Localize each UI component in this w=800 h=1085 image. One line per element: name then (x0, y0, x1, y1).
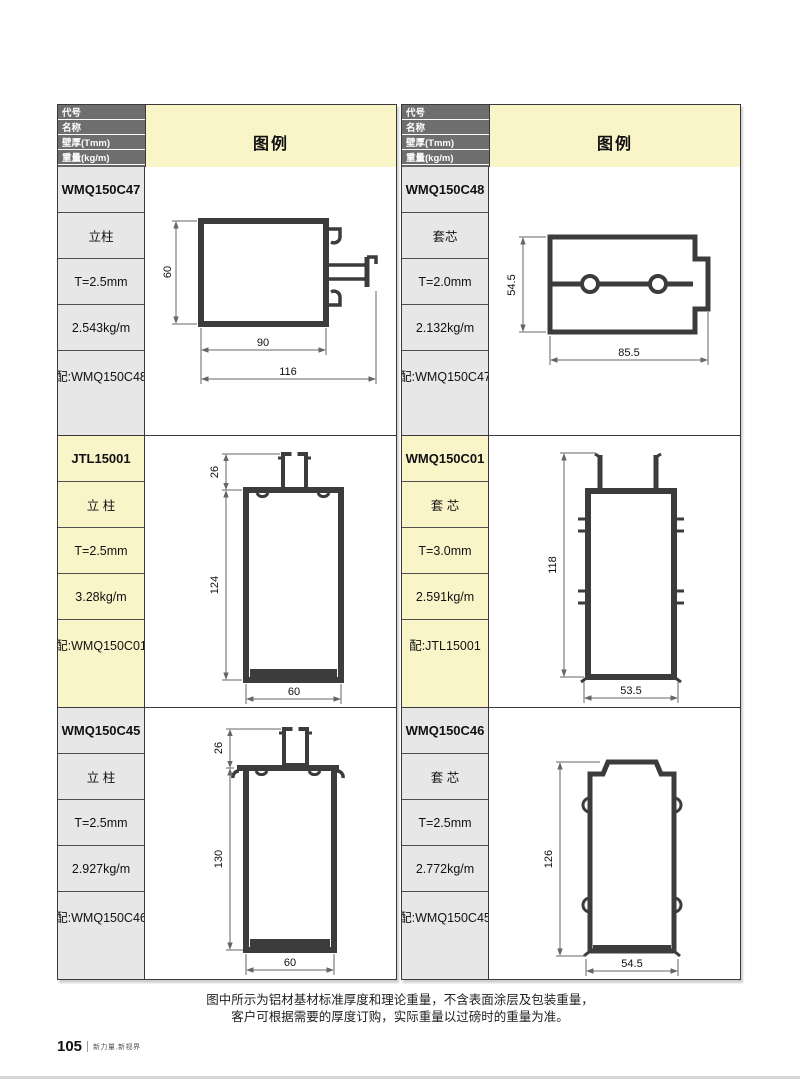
product-code: JTL15001 (58, 436, 145, 482)
profile-diagram-wmq150c46: 126 54.5 (489, 708, 740, 979)
dim-label-height: 60 (162, 265, 174, 277)
product-name: 立 柱 (58, 482, 145, 528)
profile-table-right: 代号 名称 壁厚(Tmm) 重量(kg/m) 配套 图例 WMQ150C48 套… (401, 104, 741, 980)
product-thickness: T=3.0mm (402, 528, 489, 574)
product-match: 配:WMQ150C48 (58, 351, 145, 435)
profile-drawing: 26 130 60 (146, 711, 396, 977)
product-weight: 2.543kg/m (58, 305, 145, 351)
dim-label-width: 54.5 (621, 958, 642, 970)
profile-drawing: 60 90 116 (146, 209, 396, 394)
product-thickness: T=2.5mm (58, 800, 145, 846)
page-number: 105 (57, 1038, 82, 1055)
product-thickness: T=2.5mm (58, 528, 145, 574)
page-footer: 105 新力量.新视界 (57, 1038, 140, 1055)
product-match: 配:WMQ150C45 (402, 892, 489, 979)
profile-drawing: 26 124 60 (146, 438, 396, 706)
product-code: WMQ150C45 (58, 708, 145, 754)
product-name: 套 芯 (402, 482, 489, 528)
product-group-wmq150c01: WMQ150C01 套 芯 T=3.0mm 2.591kg/m 配:JTL150… (402, 435, 740, 707)
footer-note: 图中所示为铝材基材标准厚度和理论重量，不含表面涂层及包装重量， 客户可根据需要的… (0, 992, 800, 1026)
header-field-weight: 重量(kg/m) (402, 150, 489, 165)
product-weight: 2.132kg/m (402, 305, 489, 351)
product-weight: 2.927kg/m (58, 846, 145, 892)
product-thickness: T=2.5mm (402, 800, 489, 846)
footer-note-line1: 图中所示为铝材基材标准厚度和理论重量，不含表面涂层及包装重量， (0, 992, 800, 1009)
product-name: 套芯 (402, 213, 489, 259)
product-code: WMQ150C48 (402, 167, 489, 213)
dim-label-total-width: 116 (279, 366, 297, 378)
profile-drawing: 118 53.5 (490, 441, 740, 703)
page-number-divider (87, 1041, 88, 1052)
product-name: 立柱 (58, 213, 145, 259)
dim-label-tab: 26 (209, 465, 221, 477)
brand-slogan: 新力量.新视界 (93, 1042, 140, 1052)
dim-label-width: 60 (287, 686, 299, 698)
dim-label-inner-width: 90 (256, 337, 268, 349)
dim-label-tab: 26 (213, 741, 225, 753)
product-thickness: T=2.0mm (402, 259, 489, 305)
product-group-wmq150c45: WMQ150C45 立 柱 T=2.5mm 2.927kg/m 配:WMQ150… (58, 707, 396, 979)
dim-label-height: 124 (209, 575, 221, 593)
header-field-code: 代号 (402, 105, 489, 120)
product-thickness: T=2.5mm (58, 259, 145, 305)
header-field-name: 名称 (58, 120, 145, 135)
product-match: 配:JTL15001 (402, 620, 489, 707)
dim-label-height: 54.5 (506, 274, 518, 295)
header-field-thickness: 壁厚(Tmm) (402, 135, 489, 150)
product-code: WMQ150C47 (58, 167, 145, 213)
profile-diagram-jtl15001: 26 124 60 (145, 436, 396, 707)
header-field-thickness: 壁厚(Tmm) (58, 135, 145, 150)
profile-diagram-wmq150c45: 26 130 60 (145, 708, 396, 979)
dim-label-height: 118 (547, 556, 559, 574)
page-bottom-edge (0, 1076, 800, 1079)
profile-table-left: 代号 名称 壁厚(Tmm) 重量(kg/m) 配套 图例 WMQ150C47 立… (57, 104, 397, 980)
profile-drawing: 126 54.5 (490, 710, 740, 978)
product-name: 立 柱 (58, 754, 145, 800)
product-match: 配:WMQ150C01 (58, 620, 145, 707)
profile-tables: 代号 名称 壁厚(Tmm) 重量(kg/m) 配套 图例 WMQ150C47 立… (57, 104, 741, 980)
product-weight: 2.591kg/m (402, 574, 489, 620)
dim-label-height: 130 (213, 849, 225, 867)
footer-note-line2: 客户可根据需要的厚度订购，实际重量以过磅时的重量为准。 (0, 1009, 800, 1026)
table-header-right: 代号 名称 壁厚(Tmm) 重量(kg/m) 配套 图例 (402, 105, 740, 166)
dim-label-width: 60 (283, 957, 295, 969)
profile-diagram-wmq150c48: 54.5 85.5 (489, 167, 740, 435)
header-field-code: 代号 (58, 105, 145, 120)
product-group-jtl15001: JTL15001 立 柱 T=2.5mm 3.28kg/m 配:WMQ150C0… (58, 435, 396, 707)
product-group-wmq150c48: WMQ150C48 套芯 T=2.0mm 2.132kg/m 配:WMQ150C… (402, 166, 740, 435)
dim-label-width: 53.5 (620, 685, 641, 697)
product-group-wmq150c47: WMQ150C47 立柱 T=2.5mm 2.543kg/m 配:WMQ150C… (58, 166, 396, 435)
table-header-left: 代号 名称 壁厚(Tmm) 重量(kg/m) 配套 图例 (58, 105, 396, 166)
header-field-name: 名称 (402, 120, 489, 135)
dim-label-width: 85.5 (618, 347, 639, 359)
dim-label-height: 126 (543, 849, 555, 867)
product-weight: 3.28kg/m (58, 574, 145, 620)
product-match: 配:WMQ150C46 (58, 892, 145, 979)
product-weight: 2.772kg/m (402, 846, 489, 892)
profile-drawing: 54.5 85.5 (490, 219, 740, 384)
profile-diagram-wmq150c47: 60 90 116 (145, 167, 396, 435)
header-field-weight: 重量(kg/m) (58, 150, 145, 165)
profile-diagram-wmq150c01: 118 53.5 (489, 436, 740, 707)
product-code: WMQ150C01 (402, 436, 489, 482)
product-name: 套 芯 (402, 754, 489, 800)
product-group-wmq150c46: WMQ150C46 套 芯 T=2.5mm 2.772kg/m 配:WMQ150… (402, 707, 740, 979)
product-match: 配:WMQ150C47 (402, 351, 489, 435)
product-code: WMQ150C46 (402, 708, 489, 754)
